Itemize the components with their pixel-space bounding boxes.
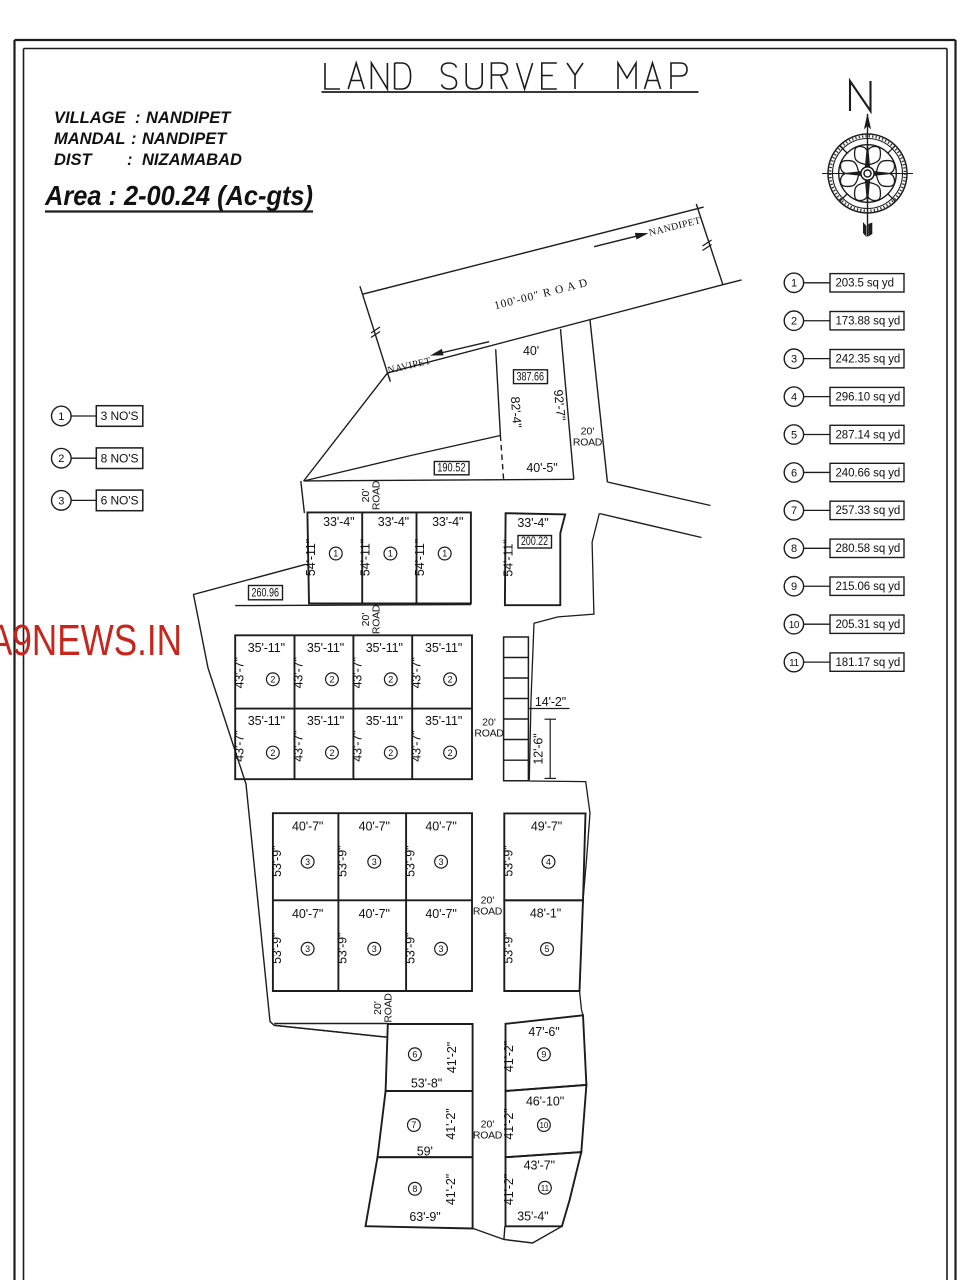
svg-text:2: 2 — [388, 748, 393, 758]
svg-text:41'-2": 41'-2" — [445, 1042, 459, 1073]
svg-text:205.31 sq yd: 205.31 sq yd — [836, 619, 901, 631]
svg-text:4: 4 — [546, 857, 551, 867]
svg-text:2: 2 — [448, 748, 453, 758]
svg-text:2: 2 — [791, 316, 797, 328]
svg-text:3: 3 — [305, 857, 310, 867]
svg-text:3 NO'S: 3 NO'S — [101, 409, 139, 423]
svg-text:8: 8 — [412, 1184, 417, 1194]
svg-text:48'-1": 48'-1" — [530, 907, 561, 921]
svg-text:53'-9": 53'-9" — [270, 933, 284, 964]
svg-text:35'-11": 35'-11" — [425, 714, 462, 728]
svg-text:33'-4": 33'-4" — [378, 515, 409, 529]
svg-text:11: 11 — [789, 658, 799, 669]
svg-text:ROAD: ROAD — [371, 604, 383, 634]
svg-text:43'-7": 43'-7" — [292, 730, 306, 761]
svg-text:54'-11": 54'-11" — [304, 539, 318, 576]
svg-text:8 NO'S: 8 NO'S — [101, 451, 139, 465]
svg-text:43'-7": 43'-7" — [409, 730, 423, 761]
svg-text:6 NO'S: 6 NO'S — [101, 494, 139, 508]
svg-text:35'-4": 35'-4" — [517, 1210, 548, 1224]
svg-text:5: 5 — [544, 944, 549, 954]
svg-text:41'-2": 41'-2" — [444, 1174, 458, 1205]
svg-text:53'-9": 53'-9" — [270, 846, 284, 877]
svg-text:9: 9 — [791, 581, 797, 593]
svg-text:3: 3 — [305, 944, 310, 954]
svg-text:1: 1 — [388, 549, 393, 559]
svg-text:3: 3 — [372, 944, 377, 954]
svg-text:200.22: 200.22 — [521, 536, 548, 548]
svg-text:NANDIPET: NANDIPET — [142, 130, 228, 148]
svg-text:8: 8 — [791, 543, 797, 555]
svg-text:173.88 sq yd: 173.88 sq yd — [836, 316, 901, 328]
svg-text:35'-11": 35'-11" — [248, 641, 285, 655]
svg-text:NIZAMABAD: NIZAMABAD — [142, 151, 242, 169]
svg-text:35'-11": 35'-11" — [366, 641, 403, 655]
svg-text:5: 5 — [791, 429, 797, 441]
svg-text:260.96: 260.96 — [252, 588, 280, 600]
svg-text:43'-7": 43'-7" — [409, 657, 423, 688]
svg-text:3: 3 — [439, 944, 444, 954]
svg-text:41'-2": 41'-2" — [502, 1108, 516, 1139]
svg-text:14'-2": 14'-2" — [535, 695, 566, 709]
svg-text:53'-9": 53'-9" — [336, 933, 350, 964]
svg-text:53'-9": 53'-9" — [403, 846, 417, 877]
svg-text:2: 2 — [329, 675, 334, 685]
svg-text:35'-11": 35'-11" — [425, 641, 462, 655]
svg-text:2: 2 — [388, 675, 393, 685]
svg-text:40'-7": 40'-7" — [292, 907, 323, 921]
svg-text:54'-11": 54'-11" — [501, 539, 515, 576]
svg-text:287.14 sq yd: 287.14 sq yd — [836, 429, 901, 441]
svg-text:3: 3 — [372, 857, 377, 867]
svg-text:ROAD: ROAD — [473, 906, 503, 918]
svg-text:ROAD: ROAD — [383, 993, 395, 1023]
svg-text:11: 11 — [541, 1184, 550, 1193]
svg-text:4: 4 — [791, 391, 797, 403]
svg-text:NANDIPET: NANDIPET — [146, 109, 232, 127]
svg-text:40'-5": 40'-5" — [526, 461, 557, 475]
svg-text:82'-4": 82'-4" — [508, 396, 524, 428]
svg-text:43'-7": 43'-7" — [232, 657, 246, 688]
svg-text:40'-7": 40'-7" — [425, 907, 456, 921]
svg-text:ROAD: ROAD — [473, 1130, 503, 1142]
svg-text:40'-7": 40'-7" — [359, 820, 390, 834]
svg-text:9: 9 — [541, 1050, 546, 1060]
svg-text:6: 6 — [791, 467, 797, 479]
svg-text:6: 6 — [412, 1050, 417, 1060]
svg-text:53'-9": 53'-9" — [502, 845, 516, 876]
svg-text:ROAD: ROAD — [371, 480, 383, 510]
svg-text:DIST: DIST — [54, 151, 94, 169]
svg-text:33'-4": 33'-4" — [517, 516, 548, 530]
svg-text:53'-8": 53'-8" — [411, 1077, 442, 1091]
svg-text:63'-9": 63'-9" — [409, 1210, 440, 1224]
svg-text:53'-9": 53'-9" — [336, 846, 350, 877]
svg-text:ROAD: ROAD — [573, 437, 603, 449]
svg-text:46'-10": 46'-10" — [526, 1095, 564, 1109]
svg-text:41'-2": 41'-2" — [502, 1174, 516, 1205]
svg-text:2: 2 — [270, 748, 275, 758]
svg-text:54'-11": 54'-11" — [413, 539, 427, 576]
svg-text:203.5 sq yd: 203.5 sq yd — [836, 278, 894, 290]
svg-text:35'-11": 35'-11" — [307, 714, 344, 728]
svg-text:33'-4": 33'-4" — [323, 515, 354, 529]
svg-text:12'-6": 12'-6" — [532, 733, 546, 764]
svg-text:41'-2": 41'-2" — [502, 1041, 516, 1072]
svg-text:A9NEWS.IN: A9NEWS.IN — [0, 616, 182, 665]
svg-text:43'-7": 43'-7" — [524, 1159, 555, 1173]
svg-text:40'-7": 40'-7" — [292, 820, 323, 834]
svg-text:41'-2": 41'-2" — [444, 1108, 458, 1139]
svg-text:2: 2 — [448, 675, 453, 685]
svg-text:1: 1 — [791, 278, 797, 290]
svg-text::: : — [135, 109, 140, 127]
svg-text:3: 3 — [58, 495, 64, 507]
svg-text:7: 7 — [791, 505, 797, 517]
svg-text:VILLAGE: VILLAGE — [54, 109, 126, 127]
svg-text:3: 3 — [439, 857, 444, 867]
svg-text:2: 2 — [270, 675, 275, 685]
svg-text:47'-6": 47'-6" — [528, 1025, 559, 1039]
svg-text:296.10 sq yd: 296.10 sq yd — [836, 391, 901, 403]
svg-text:35'-11": 35'-11" — [307, 641, 344, 655]
svg-text:53'-9": 53'-9" — [403, 933, 417, 964]
svg-text:10: 10 — [539, 1121, 548, 1130]
svg-text:3: 3 — [791, 353, 797, 365]
svg-text:190.52: 190.52 — [437, 463, 465, 475]
svg-text:40': 40' — [523, 344, 539, 358]
svg-text:43'-7": 43'-7" — [232, 730, 246, 761]
svg-text:MANDAL: MANDAL — [54, 130, 126, 148]
svg-text:280.58 sq yd: 280.58 sq yd — [836, 543, 901, 555]
svg-text:1: 1 — [333, 549, 338, 559]
svg-text:10: 10 — [789, 620, 800, 631]
svg-text:33'-4": 33'-4" — [432, 515, 463, 529]
svg-text:2: 2 — [58, 453, 64, 465]
svg-text:242.35 sq yd: 242.35 sq yd — [836, 353, 901, 365]
svg-text:43'-7": 43'-7" — [351, 657, 365, 688]
svg-text:1: 1 — [58, 411, 64, 423]
svg-text:1: 1 — [442, 549, 447, 559]
svg-text:Area : 2-00.24 (Ac-gts): Area : 2-00.24 (Ac-gts) — [44, 180, 313, 211]
svg-text:54'-11": 54'-11" — [359, 539, 373, 576]
svg-text:35'-11": 35'-11" — [366, 714, 403, 728]
svg-text:ROAD: ROAD — [474, 728, 504, 740]
svg-text:215.06 sq yd: 215.06 sq yd — [836, 581, 901, 593]
svg-text:181.17 sq yd: 181.17 sq yd — [836, 657, 901, 669]
svg-text:43'-7": 43'-7" — [292, 657, 306, 688]
svg-text:43'-7": 43'-7" — [351, 730, 365, 761]
svg-text:35'-11": 35'-11" — [248, 714, 285, 728]
svg-text:387.66: 387.66 — [517, 371, 545, 383]
svg-text:53'-9": 53'-9" — [502, 932, 516, 963]
svg-text:2: 2 — [329, 748, 334, 758]
svg-text:40'-7": 40'-7" — [425, 820, 456, 834]
svg-text:49'-7": 49'-7" — [531, 820, 562, 834]
svg-text:240.66 sq yd: 240.66 sq yd — [836, 467, 901, 479]
svg-text::: : — [127, 151, 132, 169]
svg-text:257.33 sq yd: 257.33 sq yd — [836, 505, 901, 517]
svg-text:40'-7": 40'-7" — [359, 907, 390, 921]
svg-text::: : — [131, 130, 136, 148]
svg-text:7: 7 — [411, 1120, 416, 1130]
